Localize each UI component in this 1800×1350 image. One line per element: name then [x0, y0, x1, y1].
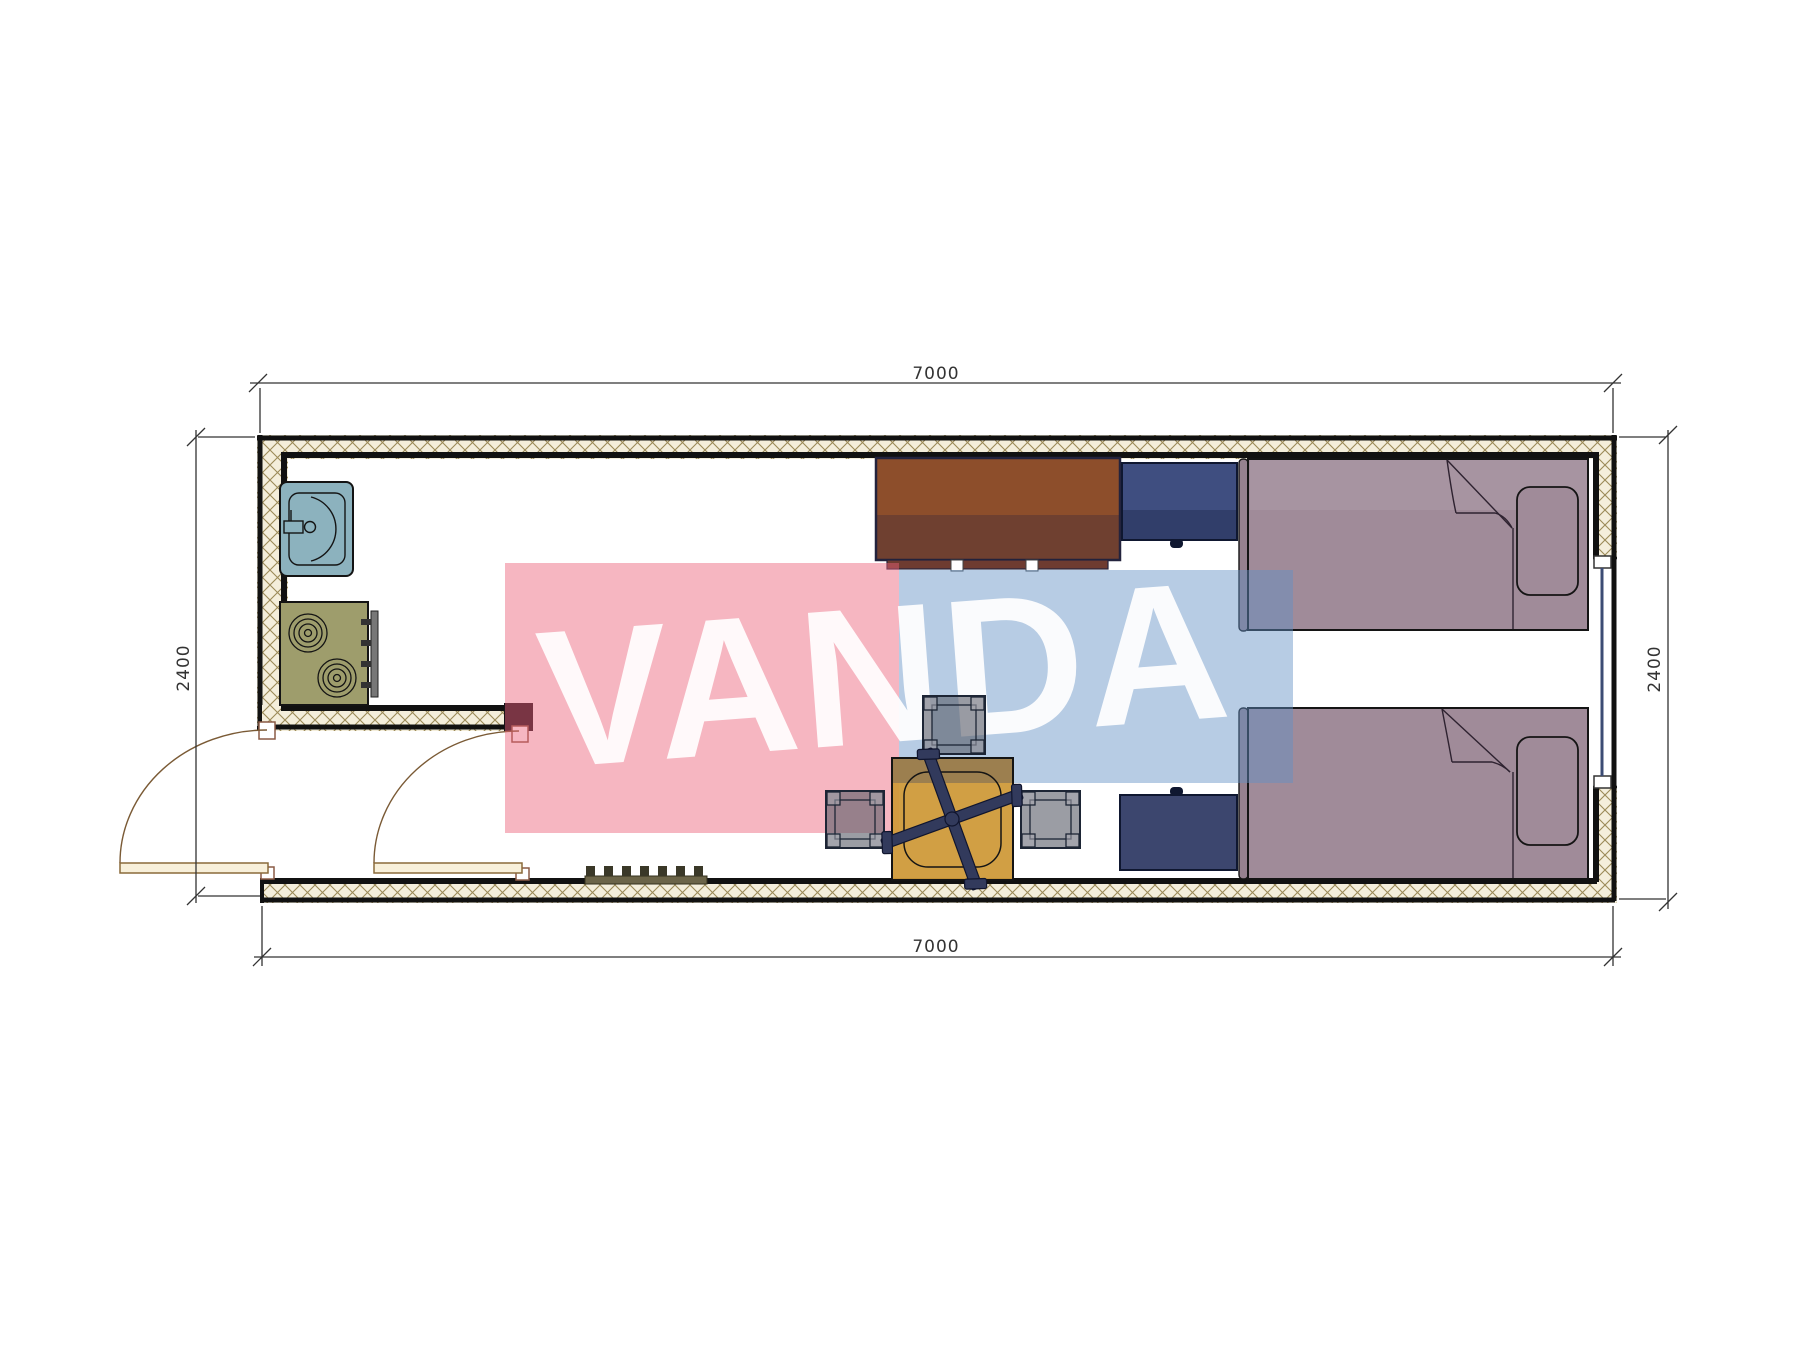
door-leaf [374, 863, 522, 873]
dim-label-bottom: 7000 [912, 937, 959, 957]
floor-plan-canvas: VANDA [0, 0, 1800, 1350]
sink-faucet-knob [305, 522, 316, 533]
dim-label-left: 2400 [174, 644, 194, 691]
stool-left [826, 791, 884, 848]
sink-faucet [284, 521, 303, 533]
dim-label-right: 2400 [1645, 645, 1665, 692]
entry-door-left [120, 722, 275, 879]
interior-partition-wall [262, 703, 533, 731]
dim-label-top: 7000 [912, 364, 959, 384]
nightstand-shade [1123, 510, 1236, 539]
door-swing-arc [374, 731, 519, 863]
bed-pillow [1517, 487, 1578, 595]
window-jamb-bottom [1594, 776, 1611, 788]
door-leaf [120, 863, 268, 873]
stool-right [1021, 791, 1080, 848]
nightstand [1122, 463, 1237, 548]
door-swing-arc [120, 730, 267, 863]
storage-chest [1120, 787, 1237, 870]
grate-teeth [586, 866, 703, 876]
stool-top [923, 696, 985, 754]
window-jamb-top [1594, 556, 1611, 568]
grate-bar [585, 876, 707, 884]
chest-knob [1170, 787, 1183, 796]
sink [280, 482, 353, 576]
window [1594, 556, 1611, 788]
dim-extension [198, 437, 260, 896]
floor-plan-drawing: VANDA [0, 0, 1800, 1350]
chest-body [1120, 795, 1237, 870]
floor-grate [585, 866, 707, 884]
stove-control-panel [371, 611, 378, 697]
stove [280, 602, 378, 705]
stove-body [280, 602, 368, 705]
dim-extension [260, 388, 1613, 433]
bed-pillow [1517, 737, 1578, 845]
